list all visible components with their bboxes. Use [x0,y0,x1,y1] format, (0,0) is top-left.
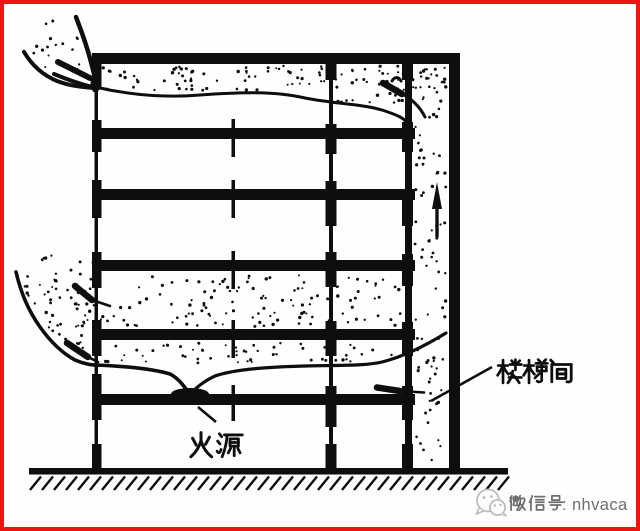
svg-text:: nhvaca: : nhvaca [562,496,628,514]
